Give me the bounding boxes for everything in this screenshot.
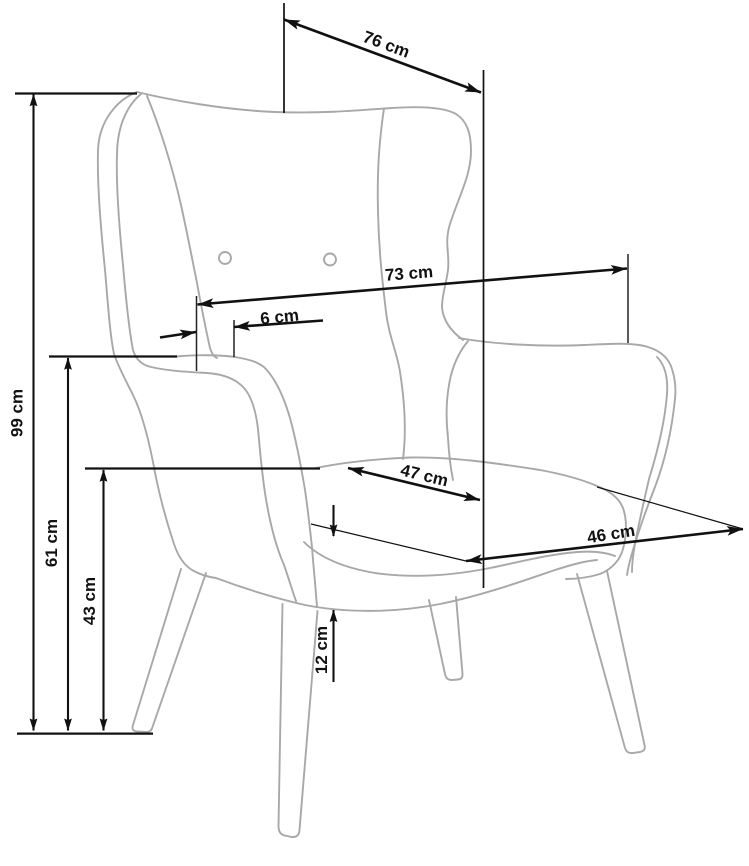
svg-text:43 cm: 43 cm <box>80 577 99 625</box>
svg-text:73 cm: 73 cm <box>384 262 434 285</box>
svg-text:99 cm: 99 cm <box>8 389 27 437</box>
svg-text:61 cm: 61 cm <box>42 519 61 567</box>
svg-text:6 cm: 6 cm <box>259 306 300 329</box>
svg-text:12 cm: 12 cm <box>312 626 331 674</box>
